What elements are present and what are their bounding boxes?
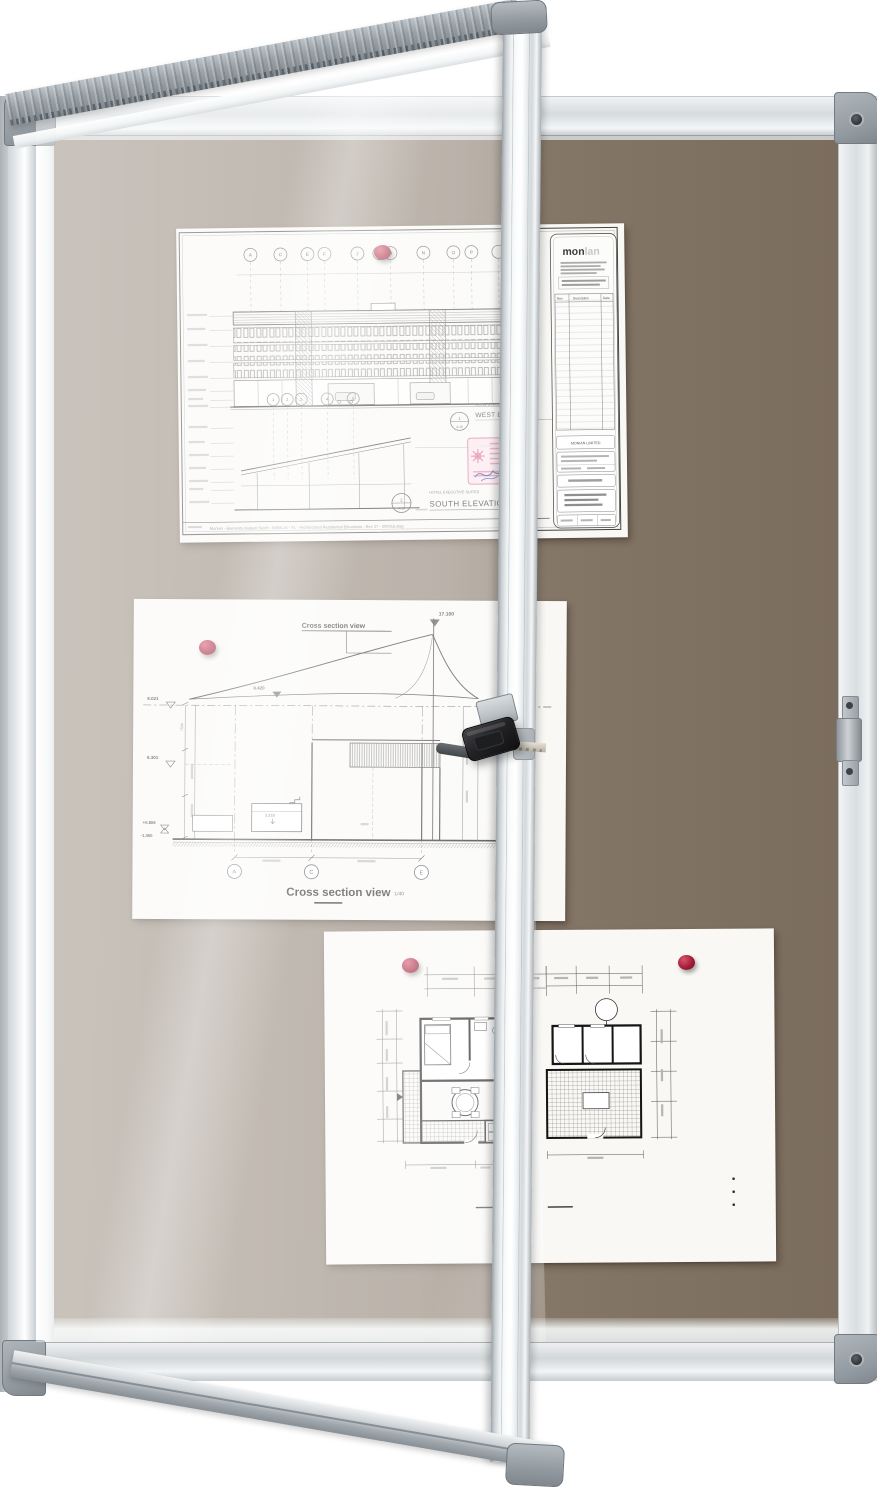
notice-board-photo: A C E F J M N O P: [0, 0, 877, 1500]
svg-text:3.318: 3.318: [265, 813, 276, 818]
section-grid-bubbles: A C E: [227, 864, 428, 879]
svg-text:SOUTH ELEVATION: SOUTH ELEVATION: [429, 499, 509, 509]
door-corner-cap-top: [490, 0, 548, 35]
svg-text:Cross section view: Cross section view: [286, 887, 390, 900]
door-corner-cap-bottom: [505, 1443, 565, 1488]
board-frame-left: [8, 96, 36, 1392]
sheet1-footer: Monian - Elements Malyan South - B4WL16 …: [183, 518, 550, 531]
svg-text:HOTEL EXECUTIVE SUITES: HOTEL EXECUTIVE SUITES: [429, 490, 479, 495]
svg-text:A: A: [233, 869, 237, 875]
svg-text:C: C: [309, 870, 313, 876]
svg-text:1: 1: [458, 416, 461, 421]
sheet1-grid-letters: A C E F J M N O P: [249, 250, 473, 258]
svg-text:N: N: [422, 250, 425, 255]
section-title: Cross section view 1/40: [286, 887, 404, 904]
hinge-screw: [846, 702, 853, 709]
svg-text:A-10: A-10: [456, 425, 463, 429]
svg-text:2: 2: [400, 497, 403, 502]
svg-text:F: F: [323, 252, 326, 257]
door-hinge: [836, 694, 862, 786]
frame-inner-lip-left: [36, 134, 54, 1342]
board-frame-left-outer: [0, 96, 8, 1392]
svg-text:8.021: 8.021: [147, 696, 159, 701]
svg-text:6.301: 6.301: [147, 755, 159, 760]
push-pin: [678, 955, 695, 970]
title-block: monlan Rev Description Date MONIAN LIMIT…: [550, 233, 620, 528]
frame-inner-lip-bottom: [54, 1318, 838, 1342]
svg-text:Monian - Elements Malyan South: Monian - Elements Malyan South - B4WL16 …: [210, 523, 404, 530]
svg-text:J: J: [356, 251, 358, 256]
svg-text:E: E: [306, 252, 309, 257]
logo-monlan: monlan: [562, 246, 599, 258]
svg-text:Rev: Rev: [557, 297, 563, 301]
elevation-drawing-sheet: A C E F J M N O P: [176, 223, 628, 542]
svg-text:A: A: [249, 253, 252, 258]
svg-text:1/40: 1/40: [394, 891, 404, 897]
svg-text:Date: Date: [603, 296, 610, 300]
svg-text:17.100: 17.100: [439, 611, 455, 617]
hinge-screw: [846, 768, 853, 775]
svg-text:8.420: 8.420: [253, 685, 265, 690]
floor-plan-drawing-sheet: [324, 928, 776, 1264]
svg-text:7500: 7500: [180, 723, 184, 731]
push-pin: [199, 640, 216, 655]
svg-text:MONIAN LIMITED: MONIAN LIMITED: [571, 441, 601, 445]
south-elevation-title: 2 A-10 HOTEL EXECUTIVE SUITES SOUTH ELEV…: [391, 490, 509, 513]
svg-text:-1.350: -1.350: [141, 833, 154, 838]
corner-screw: [849, 1352, 864, 1367]
sheet1-left-annotations: [187, 313, 233, 407]
push-pin: [374, 245, 391, 260]
svg-text:E: E: [420, 870, 424, 876]
svg-text:O: O: [452, 250, 456, 255]
push-pin: [402, 958, 419, 973]
svg-text:P: P: [470, 250, 473, 255]
floor-plan-right: [546, 965, 677, 1159]
revision-dots: [732, 1177, 735, 1206]
mast-and-sail: 17.100 8.420: [189, 610, 479, 841]
svg-text:Description: Description: [573, 296, 589, 300]
corner-screw: [849, 112, 864, 127]
svg-text:C: C: [279, 252, 283, 257]
svg-text:Cross section view: Cross section view: [302, 623, 366, 630]
svg-text:A-10: A-10: [398, 506, 405, 510]
svg-text:+0.806: +0.806: [143, 820, 157, 825]
